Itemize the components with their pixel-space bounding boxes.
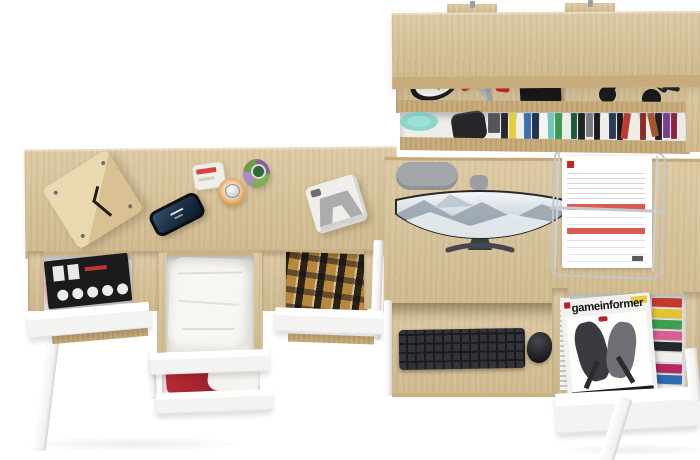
cover-red-accent — [598, 316, 607, 322]
magazine-masthead-block — [67, 264, 80, 280]
magazine-edge — [652, 352, 682, 362]
book-spine — [663, 113, 670, 138]
book-spine — [594, 113, 601, 140]
book-spine — [517, 113, 524, 138]
book-spine — [678, 113, 685, 135]
lockscreen-text — [174, 214, 183, 219]
cloth-fold — [182, 328, 234, 330]
shelf-bottom-front-edge — [400, 137, 690, 154]
book-spine — [571, 113, 578, 139]
document-tray — [550, 148, 666, 280]
clock-screw — [53, 190, 59, 196]
perfume-cap-silver — [225, 184, 240, 198]
book-spine — [563, 113, 570, 136]
magazine-edge — [652, 341, 682, 351]
camera-lens — [310, 188, 322, 198]
perfume-bottle-amber — [218, 178, 245, 206]
drawer-divider — [262, 251, 286, 311]
clock-screw — [128, 204, 134, 210]
book-spine — [524, 113, 531, 140]
book-spine — [540, 113, 547, 137]
magazine-edge — [652, 298, 682, 308]
book-spine — [578, 113, 585, 140]
book-spine — [532, 113, 539, 139]
book-spine — [488, 113, 500, 133]
perfume-cap-green — [251, 164, 266, 179]
wireless-keyboard — [399, 328, 526, 370]
clock-screw — [100, 160, 106, 166]
book-spine — [501, 113, 508, 139]
perfume-bottle-green — [243, 159, 270, 188]
book-spine — [640, 113, 647, 140]
clock-screw — [80, 233, 86, 239]
desk-side-rail — [28, 251, 44, 311]
floor-shadow-right — [555, 444, 700, 456]
magazine-edge — [652, 330, 682, 340]
clock-hand-minute — [92, 199, 112, 217]
magazine-cover: gameinformer — [560, 292, 659, 401]
checked-shirt — [281, 251, 371, 311]
shelf-top-board — [392, 11, 700, 89]
drawer-front-shirts — [275, 307, 384, 335]
scene: gameinformer — [0, 0, 700, 460]
drawer-runner-rail — [288, 334, 374, 345]
mounting-hook — [470, 1, 475, 8]
book-spine — [586, 113, 593, 137]
cover-figure-light — [604, 320, 639, 379]
magazine-edge — [652, 319, 682, 329]
magazine-masthead-block — [52, 266, 65, 282]
magazine-logo-mark — [564, 302, 571, 309]
book-spine — [671, 113, 678, 139]
book-spine — [609, 113, 616, 139]
cloth-fold — [179, 300, 239, 306]
teal-glass-bowl — [400, 112, 438, 131]
drawer-front-clothes-1 — [150, 349, 270, 375]
perfume-label-red — [196, 167, 217, 175]
magazine-black — [44, 253, 133, 310]
book-spine — [601, 113, 608, 135]
magazine-dot-row — [57, 289, 69, 301]
mounting-hook — [588, 0, 593, 7]
right-desk-left-leg — [384, 300, 392, 396]
book-spine — [548, 113, 555, 139]
book-spine — [555, 113, 562, 140]
cover-art — [566, 311, 652, 394]
book-spine — [509, 113, 516, 140]
magazine-edge — [652, 363, 682, 373]
white-folded-trousers — [167, 257, 252, 350]
teal-glass-inner — [407, 116, 431, 127]
curved-monitor — [390, 180, 570, 255]
cloth-fold — [178, 271, 242, 274]
tray-wire-frame — [550, 148, 666, 280]
left-desk-front-leg — [32, 334, 60, 451]
magazine-red-strip — [85, 265, 107, 271]
floor-shadow-left — [18, 436, 248, 452]
drawer-front-clothes-2 — [156, 389, 273, 414]
magazine-edge — [652, 308, 682, 318]
perfume-label-line — [198, 176, 214, 181]
